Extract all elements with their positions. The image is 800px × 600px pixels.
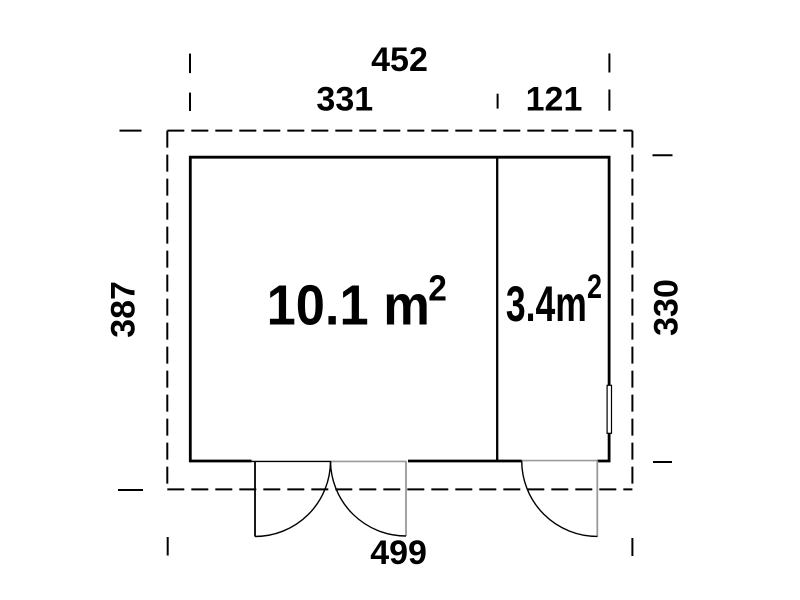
- svg-text:3.4m: 3.4m: [506, 277, 587, 332]
- svg-text:330: 330: [648, 279, 686, 336]
- svg-text:2: 2: [587, 267, 602, 306]
- svg-text:331: 331: [316, 81, 373, 119]
- svg-text:452: 452: [371, 41, 428, 79]
- svg-text:121: 121: [526, 81, 583, 119]
- svg-text:387: 387: [105, 281, 143, 338]
- svg-text:10.1 m: 10.1 m: [267, 272, 430, 337]
- svg-text:499: 499: [370, 534, 427, 572]
- svg-text:2: 2: [428, 269, 447, 308]
